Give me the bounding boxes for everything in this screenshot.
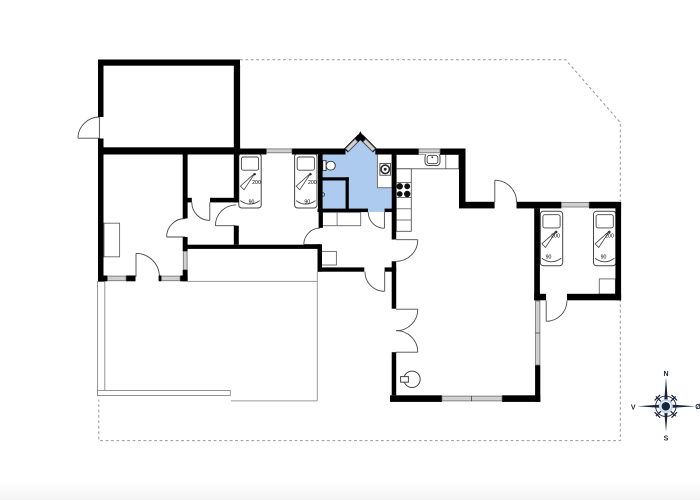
- svg-text:V: V: [631, 404, 636, 411]
- svg-text:90: 90: [546, 255, 552, 261]
- svg-text:90: 90: [304, 200, 310, 206]
- svg-text:200: 200: [308, 180, 317, 186]
- svg-text:Ø: Ø: [695, 404, 700, 411]
- svg-text:200: 200: [551, 234, 560, 240]
- svg-text:200: 200: [605, 234, 614, 240]
- svg-text:90: 90: [249, 200, 255, 206]
- svg-text:90: 90: [601, 255, 607, 261]
- svg-text:200: 200: [252, 180, 261, 186]
- svg-text:N: N: [663, 371, 668, 378]
- svg-text:S: S: [664, 436, 669, 443]
